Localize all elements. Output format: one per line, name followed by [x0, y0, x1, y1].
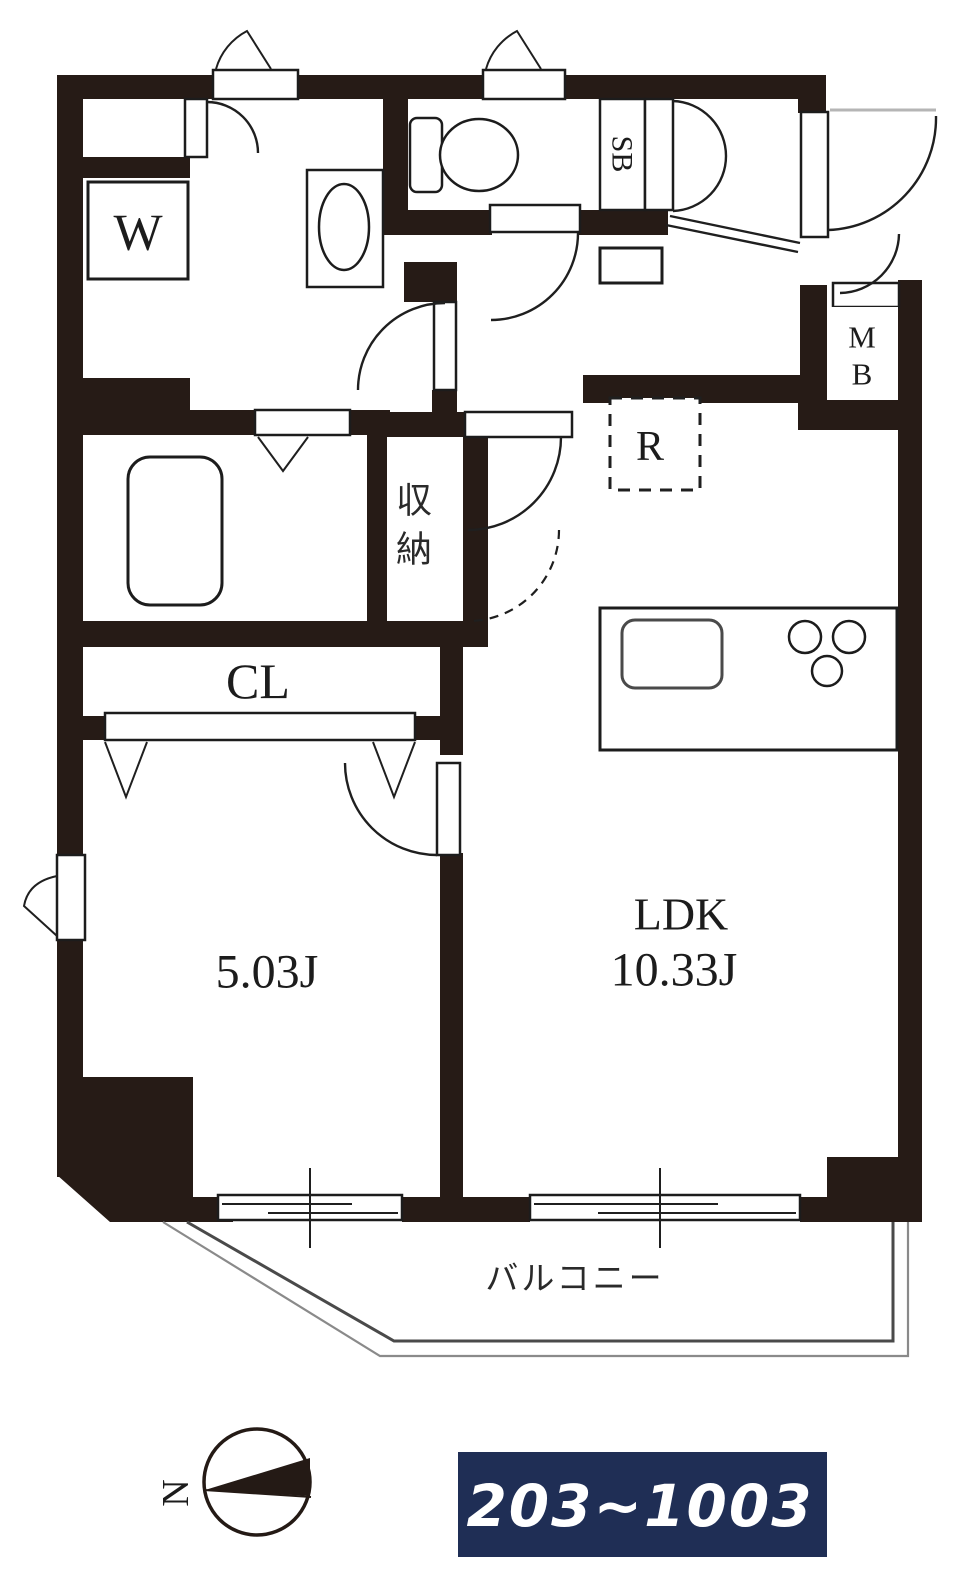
- bedroom-door-leaf: [437, 763, 460, 855]
- unit-badge: 203~1003: [458, 1452, 827, 1557]
- bedroom-size-label: 5.03J: [216, 946, 319, 999]
- shoe-box-swing-bottom: [673, 156, 726, 211]
- hall-cabinet: [600, 248, 662, 283]
- wall-mb-left: [800, 285, 827, 403]
- wall-storage-right: [463, 437, 488, 647]
- wall-top-mid: [296, 75, 483, 99]
- stove-burner-3: [812, 656, 842, 686]
- stove-burner-2: [833, 621, 865, 653]
- upper-closet-door-swing: [207, 102, 258, 153]
- wall-washroom-right-a: [404, 262, 457, 302]
- washroom-door-leaf: [434, 302, 456, 390]
- wall-cl-top: [57, 621, 488, 647]
- bedroom-side-window: [57, 855, 85, 940]
- wall-toilet-left: [383, 99, 408, 210]
- compass: N: [155, 1429, 311, 1535]
- wall-right-outer: [898, 280, 922, 1222]
- closet-door-chevron-left: [105, 742, 147, 797]
- stove-burner-1: [789, 621, 821, 653]
- wall-divider-upper: [440, 643, 463, 755]
- shoe-box-label: SB: [606, 136, 639, 173]
- toilet-bowl: [440, 119, 518, 191]
- closet-door-chevron-right: [373, 742, 415, 797]
- window-toilet-swing-icon: [486, 31, 541, 69]
- wall-cl-stub-right: [415, 716, 442, 740]
- upper-closet-door-leaf: [185, 99, 207, 157]
- wall-divider-lower: [440, 853, 463, 1199]
- wall-step-bottom-right: [827, 1157, 898, 1199]
- vanity-basin: [319, 184, 369, 270]
- bath-folding-door: [255, 410, 350, 435]
- ldk-name-label: LDK: [634, 889, 729, 940]
- wall-bath-top-left: [57, 378, 190, 435]
- meter-box-label-b: B: [852, 357, 873, 392]
- toilet-tank: [410, 118, 442, 192]
- wall-bottom-mid: [402, 1197, 530, 1222]
- bath-folding-door-chevron: [258, 437, 308, 471]
- wall-below-upper-closet: [57, 157, 190, 178]
- entry-door-leaf: [801, 112, 828, 237]
- ldk-size-label: 10.33J: [611, 944, 738, 997]
- window-top-left: [213, 70, 298, 99]
- shoe-box-door: [645, 99, 673, 210]
- compass-north-label: N: [155, 1479, 197, 1506]
- ldk-balcony-window: [530, 1195, 800, 1220]
- window-toilet: [483, 70, 565, 99]
- wall-storage-top: [387, 412, 465, 437]
- bathtub: [128, 457, 222, 605]
- toilet-door-leaf: [490, 205, 580, 232]
- bedroom-door-swing: [345, 763, 437, 855]
- closet-label: CL: [226, 653, 290, 709]
- floor-plan: W SB M B R 収 納 CL 5.03J LDK 10.33J バルコニー…: [0, 0, 960, 1584]
- shoe-box-swing-top: [673, 101, 726, 156]
- wall-bath-top-right: [350, 410, 390, 435]
- closet-doors: [105, 713, 415, 740]
- balcony-label: バルコニー: [485, 1260, 664, 1297]
- storage-label-1: 収: [396, 480, 432, 521]
- wall-top-right: [565, 75, 826, 99]
- storage-label-2: 納: [396, 529, 432, 570]
- washer-label: W: [113, 205, 162, 262]
- unit-badge-text: 203~1003: [466, 1472, 813, 1540]
- toilet-door-swing: [491, 233, 578, 320]
- refrigerator-label: R: [636, 424, 664, 470]
- hall-ldk-door-leaf: [465, 412, 572, 437]
- window-top-left-swing-icon: [216, 31, 271, 69]
- bedroom-side-window-swing-icon: [24, 876, 57, 936]
- wall-storage-left: [367, 435, 387, 623]
- wall-toilet-bottom-r: [578, 210, 668, 235]
- meter-box-label-m: M: [848, 320, 876, 355]
- kitchen-sink: [622, 620, 722, 688]
- wall-bottom-right: [800, 1197, 922, 1222]
- entry-door-swing: [828, 116, 936, 230]
- wall-bath-top-mid: [190, 410, 255, 435]
- wall-toilet-bottom-l: [380, 210, 492, 235]
- wall-corner-bottom-left: [57, 1077, 233, 1222]
- washroom-door-swing: [358, 303, 445, 390]
- wall-cl-stub-left: [80, 716, 105, 740]
- wall-washroom-right-b: [432, 390, 457, 414]
